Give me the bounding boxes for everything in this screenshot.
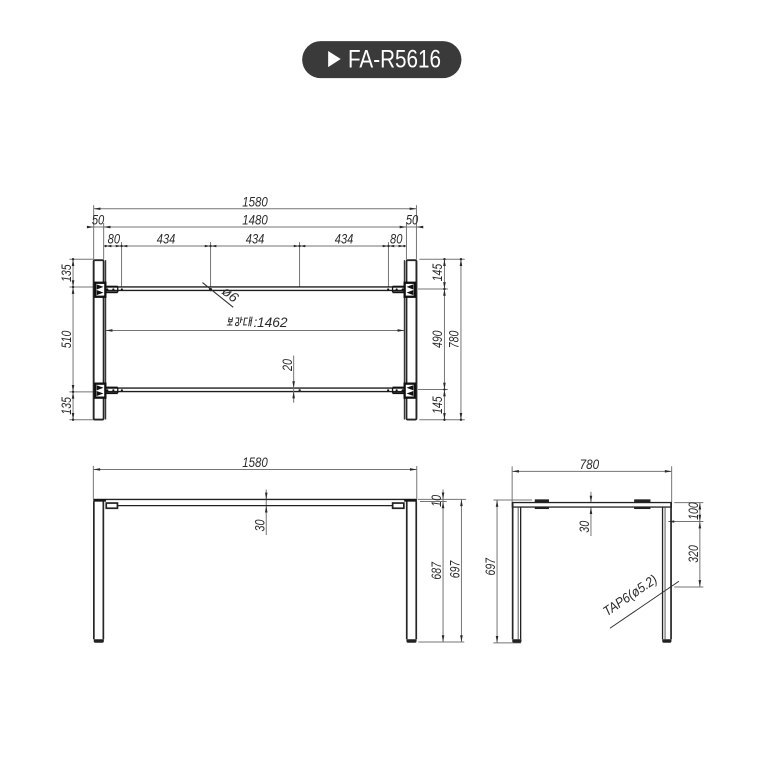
- svg-text:1462: 1462: [257, 314, 288, 330]
- svg-text:780: 780: [580, 456, 600, 472]
- svg-text:30: 30: [576, 521, 592, 533]
- svg-text:1580: 1580: [242, 454, 268, 470]
- svg-text:TAP6(ø5.2): TAP6(ø5.2): [600, 572, 660, 619]
- svg-text:80: 80: [108, 231, 121, 247]
- svg-text:434: 434: [246, 231, 265, 247]
- svg-text:434: 434: [335, 231, 354, 247]
- svg-text:80: 80: [390, 231, 403, 247]
- svg-text:30: 30: [251, 519, 267, 531]
- svg-text:687: 687: [428, 561, 444, 579]
- svg-text:135: 135: [58, 264, 74, 282]
- svg-text:145: 145: [429, 396, 445, 414]
- svg-text:490: 490: [429, 330, 445, 348]
- svg-text:780: 780: [446, 331, 462, 349]
- svg-text:10: 10: [428, 495, 444, 507]
- svg-text:320: 320: [685, 545, 701, 563]
- svg-text:697: 697: [447, 560, 463, 578]
- svg-text:50: 50: [92, 212, 105, 228]
- svg-text:145: 145: [429, 264, 445, 282]
- svg-text:135: 135: [58, 397, 74, 415]
- svg-text:1580: 1580: [242, 193, 268, 209]
- svg-text:1480: 1480: [242, 212, 268, 228]
- svg-text:510: 510: [58, 331, 74, 349]
- svg-text:FA-R5616: FA-R5616: [348, 46, 441, 74]
- svg-text:100: 100: [685, 502, 701, 520]
- svg-text:20: 20: [279, 359, 295, 372]
- svg-text:434: 434: [157, 231, 176, 247]
- svg-text:697: 697: [482, 557, 498, 575]
- svg-text:ø6: ø6: [219, 283, 242, 306]
- svg-text:50: 50: [406, 212, 419, 228]
